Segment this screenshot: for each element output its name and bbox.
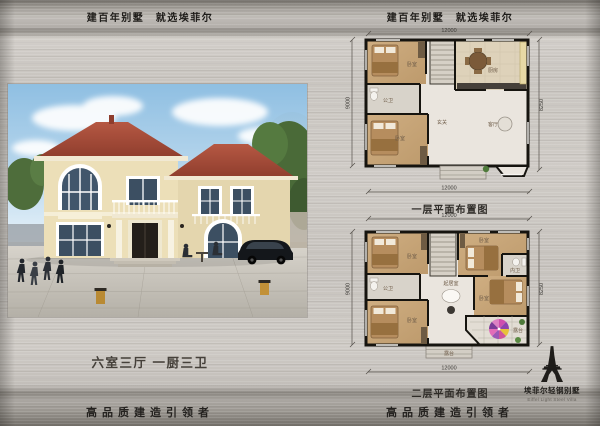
plant-icon (515, 337, 521, 343)
window-lower-left (56, 222, 104, 256)
svg-text:露台: 露台 (513, 327, 523, 334)
entry-porch (440, 166, 489, 179)
floor2-dim-left-value: 9000 (346, 283, 352, 295)
svg-text:公卫: 公卫 (383, 286, 393, 292)
plaque (58, 212, 102, 219)
bed-icon (371, 121, 398, 155)
bed-icon (372, 237, 398, 268)
svg-text:客厅: 客厅 (488, 121, 498, 128)
villa-photo (8, 84, 307, 317)
wall-lamp-left-icon (107, 224, 111, 228)
arched-window-large (58, 164, 102, 210)
wardrobe-icon (421, 234, 427, 250)
main-eave (34, 156, 188, 161)
wardrobe-icon (460, 234, 465, 248)
living-table-icon (498, 117, 512, 131)
unit-spec: 六室三厅 一厨三卫 (0, 352, 300, 371)
svg-text:卧室: 卧室 (407, 253, 417, 260)
svg-text:起居室: 起居室 (443, 280, 458, 287)
toilet-icon (370, 278, 378, 290)
svg-text:卧室: 卧室 (479, 237, 489, 244)
header-slogan-right: 建百年别墅 就选埃菲尔 (300, 9, 600, 24)
brand-logo: 埃菲尔轻钢别墅 Eiffel Light Steel Villa (508, 346, 596, 402)
right-eave (164, 176, 298, 180)
floor1-dim-top-value: 12000 (441, 28, 456, 34)
wardrobe-icon (421, 327, 427, 343)
kitchen-counter-icon (457, 83, 526, 89)
floor2-dim-bottom-value: 12000 (441, 366, 456, 372)
bed-icon (490, 280, 522, 304)
villa-illustration (8, 84, 307, 317)
floor1-dim-left-value: 9000 (346, 97, 352, 109)
svg-text:露台: 露台 (444, 350, 454, 357)
wardrobe-icon (418, 42, 425, 58)
wardrobe-icon (420, 146, 427, 164)
footer-slogan-left: 高品质建造引领者 (0, 404, 300, 420)
roof-finial (109, 115, 114, 124)
svg-text:公卫: 公卫 (383, 98, 393, 104)
stairs-icon (430, 40, 455, 84)
svg-text:玄关: 玄关 (437, 119, 447, 126)
wall-lamp-right-icon (180, 224, 184, 228)
bed-icon (372, 45, 398, 76)
floor1-dim-right-value: 8250 (539, 99, 545, 111)
svg-text:卧室: 卧室 (395, 135, 405, 142)
brand-name-en: Eiffel Light Steel Villa (508, 397, 596, 402)
svg-text:内卫: 内卫 (510, 267, 520, 274)
plant-icon (519, 319, 525, 325)
brand-name-cn: 埃菲尔轻钢别墅 (508, 385, 596, 396)
table-icon (447, 306, 455, 314)
arched-window-right-lower (204, 219, 242, 258)
svg-text:厨房: 厨房 (488, 67, 498, 74)
floor1-dim-bottom-value: 12000 (441, 186, 456, 192)
brochure-page: 建百年别墅 就选埃菲尔 建百年别墅 就选埃菲尔 (0, 0, 600, 426)
floor1-plan: 12000 9000 8250 12000 (338, 26, 553, 203)
kitchen-cabinet-icon (520, 42, 527, 84)
bed-icon (371, 306, 398, 338)
umbrella-icon (489, 319, 509, 339)
svg-text:卧室: 卧室 (479, 295, 489, 302)
stairs-icon (430, 232, 456, 276)
tub-icon (442, 290, 460, 303)
svg-text:卧室: 卧室 (407, 317, 417, 324)
floor1-title: 一层平面布置图 (300, 201, 600, 216)
entrance-door (110, 220, 180, 267)
toilet-icon (370, 88, 378, 100)
eiffel-tower-icon (535, 346, 569, 383)
svg-text:卧室: 卧室 (407, 61, 417, 68)
floor2-dim-right-value: 8250 (539, 283, 545, 295)
footer-slogan-right: 高品质建造引领者 (300, 404, 600, 420)
header-slogan-left: 建百年别墅 就选埃菲尔 (0, 9, 300, 24)
bed-icon (466, 246, 498, 270)
